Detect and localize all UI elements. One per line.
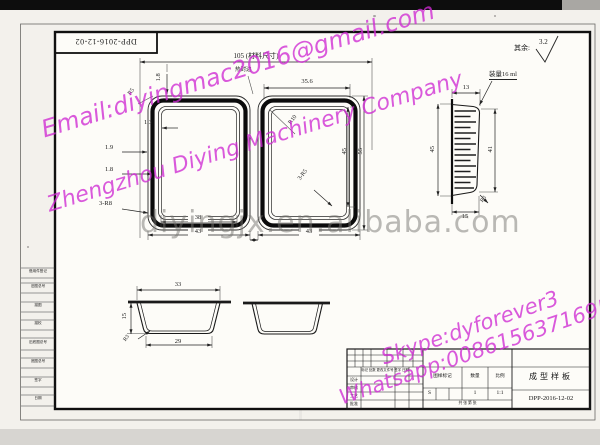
val-mark: S (423, 391, 436, 397)
col-scale-header: 比例 (488, 374, 512, 379)
watermark-website: diyingjx.en.alibaba.com (140, 208, 521, 238)
drawing-title: 成型样板 (512, 373, 590, 381)
margin-label: 底图总号 (21, 360, 55, 364)
margin-label: 签字 (21, 379, 55, 383)
dim-side-height-left: 45 (430, 146, 437, 153)
dim-pocket-mouth-width: 35.6 (287, 79, 327, 86)
col-qty-header: 数量 (462, 374, 488, 379)
margin-label: 旧底图总号 (21, 341, 55, 345)
margin-table-lines (21, 268, 55, 406)
sheet-count-footer: 共 张 第 张 (423, 402, 512, 406)
dim-rim-step: 1.3 (144, 120, 152, 127)
dim-section-bottom-width: 29 (168, 339, 188, 346)
margin-label: 借用件登记 (21, 270, 55, 274)
drawing-number: DPP-2016-12-02 (512, 396, 590, 403)
val-qty: 1 (462, 391, 488, 397)
dim-cavity-height: 45 (342, 148, 349, 155)
margin-label: 描校 (21, 322, 55, 326)
margin-label: 日期 (21, 397, 55, 401)
scanned-drawing-sheet: DPP-2016-12-02 105 (材料尺寸) 热封边 35.6 1.8 R… (0, 0, 600, 445)
label-fill-volume: 装量16 ml (489, 72, 517, 80)
dim-pocket-height: 55 (358, 148, 365, 155)
dim-section-depth: 15 (122, 313, 129, 320)
dim-rim-1: 1.9 (105, 145, 113, 152)
val-scale: 1:1 (488, 391, 512, 397)
margin-label: 描图 (21, 304, 55, 308)
dim-side-height-right: 41 (488, 146, 495, 153)
margin-label: 旧图总号 (21, 285, 55, 289)
label-surface-roughness: 3.2 (539, 39, 548, 46)
label-surface-note: 其余: (514, 45, 530, 52)
doc-number-top: DPP-2016-12-02 (57, 37, 155, 45)
dim-section-top-width: 33 (168, 282, 188, 289)
